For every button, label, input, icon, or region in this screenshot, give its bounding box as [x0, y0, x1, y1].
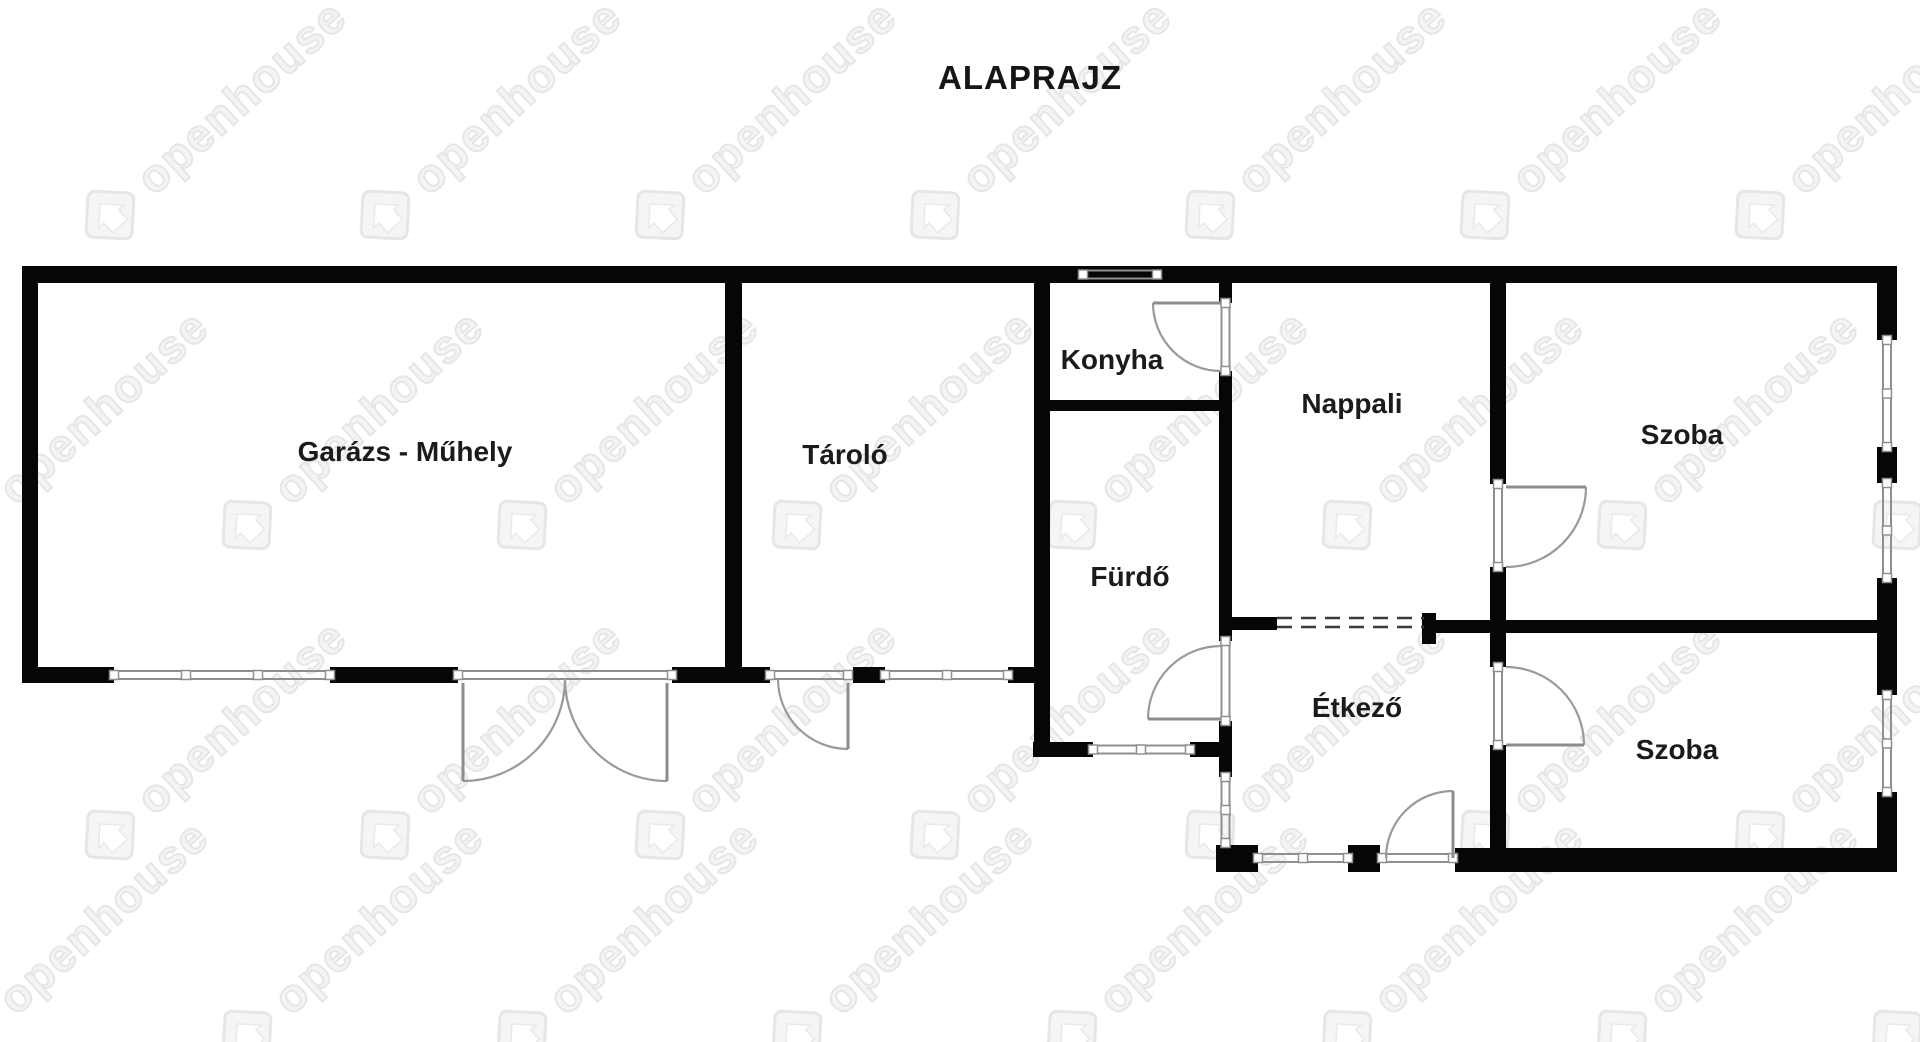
floorplan-page: openhouseopenhouseopenhouseopenhouseopen…	[0, 0, 1920, 1042]
room-label-living-room: Nappali	[1301, 388, 1402, 420]
label-layer: ALAPRAJZ Garázs - Műhely Tároló Konyha F…	[0, 0, 1920, 1042]
room-label-room-lower: Szoba	[1636, 734, 1718, 766]
page-title: ALAPRAJZ	[938, 59, 1122, 97]
room-label-bathroom: Fürdő	[1090, 561, 1169, 593]
room-label-dining-room: Étkező	[1312, 692, 1402, 724]
room-label-room-upper: Szoba	[1641, 419, 1723, 451]
room-label-garage-workshop: Garázs - Műhely	[298, 436, 513, 468]
room-label-storage: Tároló	[802, 439, 888, 471]
room-label-kitchen: Konyha	[1061, 344, 1164, 376]
